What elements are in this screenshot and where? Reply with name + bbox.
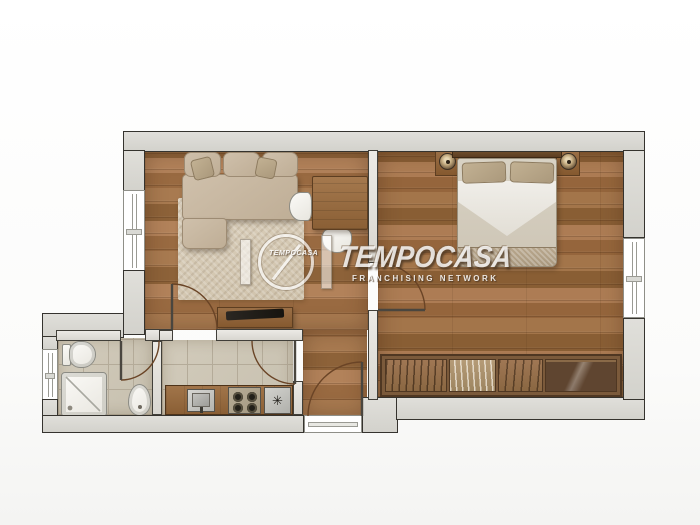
door-swing-overlay (0, 0, 700, 525)
apartment-floorplan: ✳ (0, 0, 700, 525)
floorplan-image: ✳ (0, 0, 700, 525)
